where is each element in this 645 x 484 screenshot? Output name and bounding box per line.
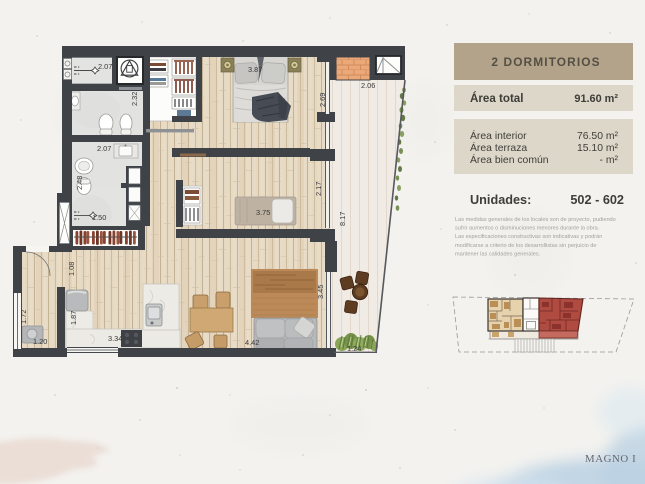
svg-text:- m²: - m²: [600, 155, 619, 166]
svg-text:MAGNO I: MAGNO I: [585, 453, 636, 465]
svg-text:sufrir aumentos o disminucione: sufrir aumentos o disminuciones menores …: [455, 226, 600, 232]
svg-text:2.32: 2.32: [130, 92, 139, 106]
svg-text:502 - 602: 502 - 602: [570, 193, 624, 207]
svg-text:2.07: 2.07: [97, 144, 111, 153]
svg-text:2.06: 2.06: [361, 81, 375, 90]
svg-text:Área terraza: Área terraza: [470, 141, 527, 154]
svg-text:91.60 m²: 91.60 m²: [574, 93, 618, 105]
svg-text:2.17: 2.17: [314, 182, 323, 196]
svg-text:2 DORMITORIOS: 2 DORMITORIOS: [491, 55, 600, 69]
svg-text:2.07: 2.07: [98, 62, 112, 71]
svg-text:4.42: 4.42: [245, 338, 259, 347]
svg-text:3.75: 3.75: [256, 208, 270, 217]
svg-text:Área interior: Área interior: [470, 129, 527, 142]
svg-text:1.08: 1.08: [67, 262, 76, 276]
svg-text:Área total: Área total: [470, 92, 523, 105]
svg-text:1.24: 1.24: [347, 344, 361, 353]
svg-text:3.87: 3.87: [248, 65, 262, 74]
svg-text:8.17: 8.17: [338, 212, 347, 226]
svg-text:15.10 m²: 15.10 m²: [577, 143, 619, 154]
svg-text:3.34: 3.34: [108, 334, 122, 343]
svg-text:2.48: 2.48: [75, 176, 84, 190]
svg-text:76.50 m²: 76.50 m²: [577, 131, 619, 142]
svg-text:1.87: 1.87: [69, 311, 78, 325]
svg-text:2.69: 2.69: [318, 93, 327, 107]
svg-text:3.45: 3.45: [316, 285, 325, 299]
svg-text:1.50: 1.50: [92, 213, 106, 222]
svg-text:Las especificaciones construct: Las especificaciones constructivas son i…: [455, 234, 602, 240]
svg-text:1.20: 1.20: [33, 337, 47, 346]
svg-text:1.72: 1.72: [19, 310, 28, 324]
svg-text:modificarse a criterio de los: modificarse a criterio de los desarrolli…: [455, 243, 596, 249]
svg-text:Área bien común: Área bien común: [470, 153, 549, 166]
svg-text:Las medidas generales de los l: Las medidas generales de los locales son…: [455, 217, 616, 223]
svg-text:mantener las calidades general: mantener las calidades generales.: [455, 251, 541, 257]
svg-text:Unidades:: Unidades:: [470, 193, 531, 207]
